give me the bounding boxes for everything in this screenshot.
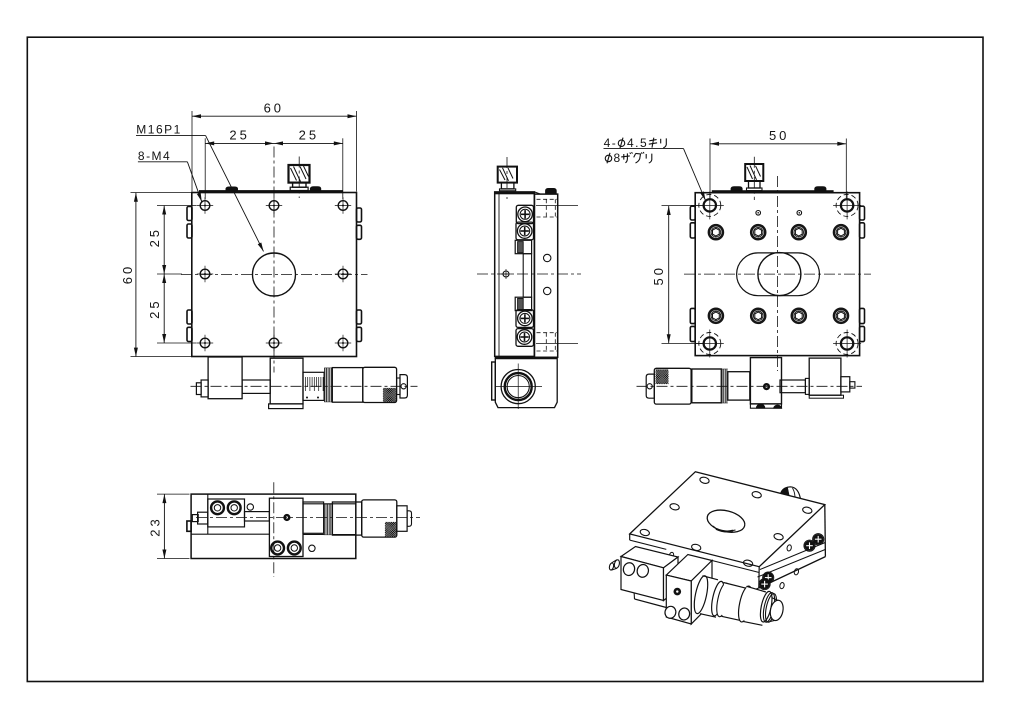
svg-text:M16P1: M16P1 <box>136 123 182 137</box>
svg-text:25: 25 <box>229 127 249 142</box>
svg-text:60: 60 <box>264 100 284 115</box>
svg-text:60: 60 <box>120 264 135 284</box>
svg-text:23: 23 <box>148 516 163 536</box>
svg-text:25: 25 <box>147 227 162 247</box>
svg-text:50: 50 <box>651 265 666 285</box>
svg-text:8: 8 <box>614 151 622 165</box>
svg-text:4-: 4- <box>604 136 618 150</box>
svg-text:4.5: 4.5 <box>627 136 648 150</box>
svg-text:25: 25 <box>147 298 162 318</box>
svg-text:50: 50 <box>769 128 789 143</box>
svg-text:8-M4: 8-M4 <box>138 149 171 163</box>
svg-text:25: 25 <box>299 127 319 142</box>
